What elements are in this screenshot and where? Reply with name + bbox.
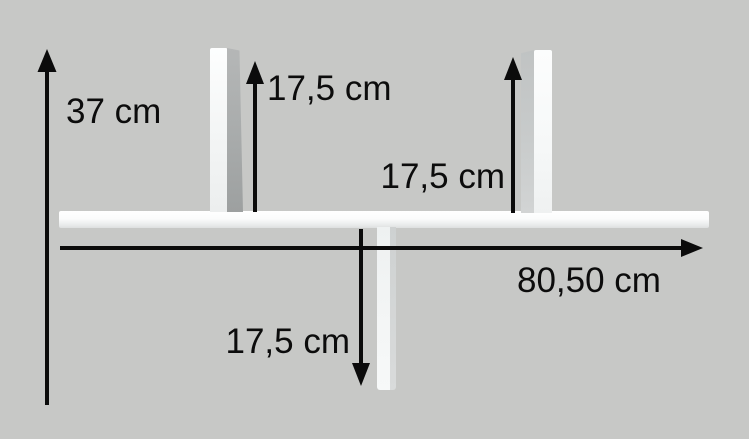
arrow-divider-bottom-down-icon bbox=[352, 229, 370, 386]
divider-side-shadow bbox=[521, 50, 534, 213]
divider-side-shadow bbox=[390, 227, 396, 390]
shelf-board bbox=[59, 211, 709, 228]
shelf-divider-top-left bbox=[210, 48, 243, 212]
divider-front-face bbox=[534, 50, 552, 213]
shelf-divider-top-right bbox=[521, 50, 552, 213]
label-total-width: 80,50 cm bbox=[517, 263, 661, 298]
shelf-dimension-diagram: 37 cm 17,5 cm 17,5 cm 80,50 cm 17,5 cm bbox=[0, 0, 749, 439]
divider-front-face bbox=[210, 48, 227, 212]
arrow-total-height-up-icon bbox=[38, 49, 57, 405]
divider-front-face bbox=[377, 227, 390, 390]
arrow-divider-top-right-up-icon bbox=[504, 57, 522, 213]
label-divider-top-right-height: 17,5 cm bbox=[381, 159, 506, 194]
arrow-divider-top-left-up-icon bbox=[246, 61, 264, 212]
label-divider-top-left-height: 17,5 cm bbox=[267, 71, 392, 106]
divider-side-shadow bbox=[227, 48, 243, 212]
label-divider-bottom-height: 17,5 cm bbox=[226, 324, 351, 359]
shelf-divider-bottom bbox=[377, 227, 396, 390]
label-total-height: 37 cm bbox=[66, 94, 161, 129]
